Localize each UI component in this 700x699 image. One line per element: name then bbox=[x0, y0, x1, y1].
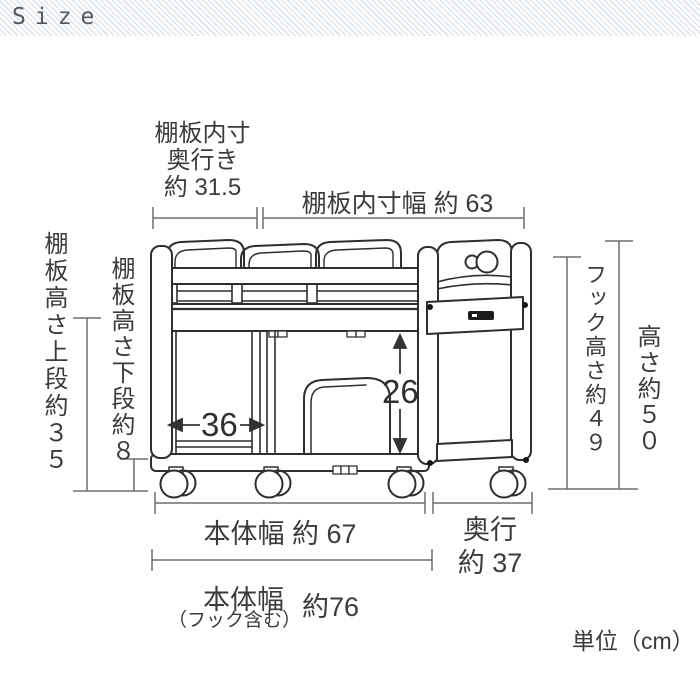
shelf-board bbox=[160, 304, 426, 331]
panel-handle bbox=[468, 311, 494, 320]
label-shelf-height-upper: 棚板高さ上段約３５ bbox=[36, 231, 71, 474]
back-rail bbox=[163, 291, 423, 301]
label-body-width-hook-note: （フック含む） bbox=[168, 605, 301, 632]
label-unit-note: 単位（cm） bbox=[572, 622, 695, 656]
hook-ring bbox=[477, 252, 498, 273]
label-shelf-inner-depth: 棚板内寸 奥行き 約 31.5 bbox=[130, 120, 275, 201]
label-inner-width-value: 36 bbox=[201, 406, 238, 444]
label-shelf-inner-width: 棚板内寸幅 約 63 bbox=[265, 184, 530, 220]
size-diagram-page: Size bbox=[0, 0, 700, 699]
label-body-width-hook-value: 約76 bbox=[302, 585, 359, 624]
bag-outline bbox=[304, 378, 390, 454]
label-shelf-height-lower: 棚板高さ下段約８ bbox=[103, 256, 138, 464]
left-post bbox=[151, 246, 172, 458]
label-hook-height: フック高さ約４９ bbox=[578, 263, 610, 455]
label-body-width: 本体幅 約 67 bbox=[165, 512, 395, 551]
side-panel-unit bbox=[418, 240, 531, 466]
cart-body bbox=[151, 240, 531, 498]
top-rail bbox=[163, 268, 423, 284]
label-inner-height-value: 26 bbox=[382, 373, 419, 411]
base-rail bbox=[151, 454, 429, 471]
base-latch bbox=[333, 466, 357, 474]
label-depth: 奥行 約 37 bbox=[440, 514, 540, 580]
label-overall-height: 高さ約５０ bbox=[629, 324, 664, 454]
